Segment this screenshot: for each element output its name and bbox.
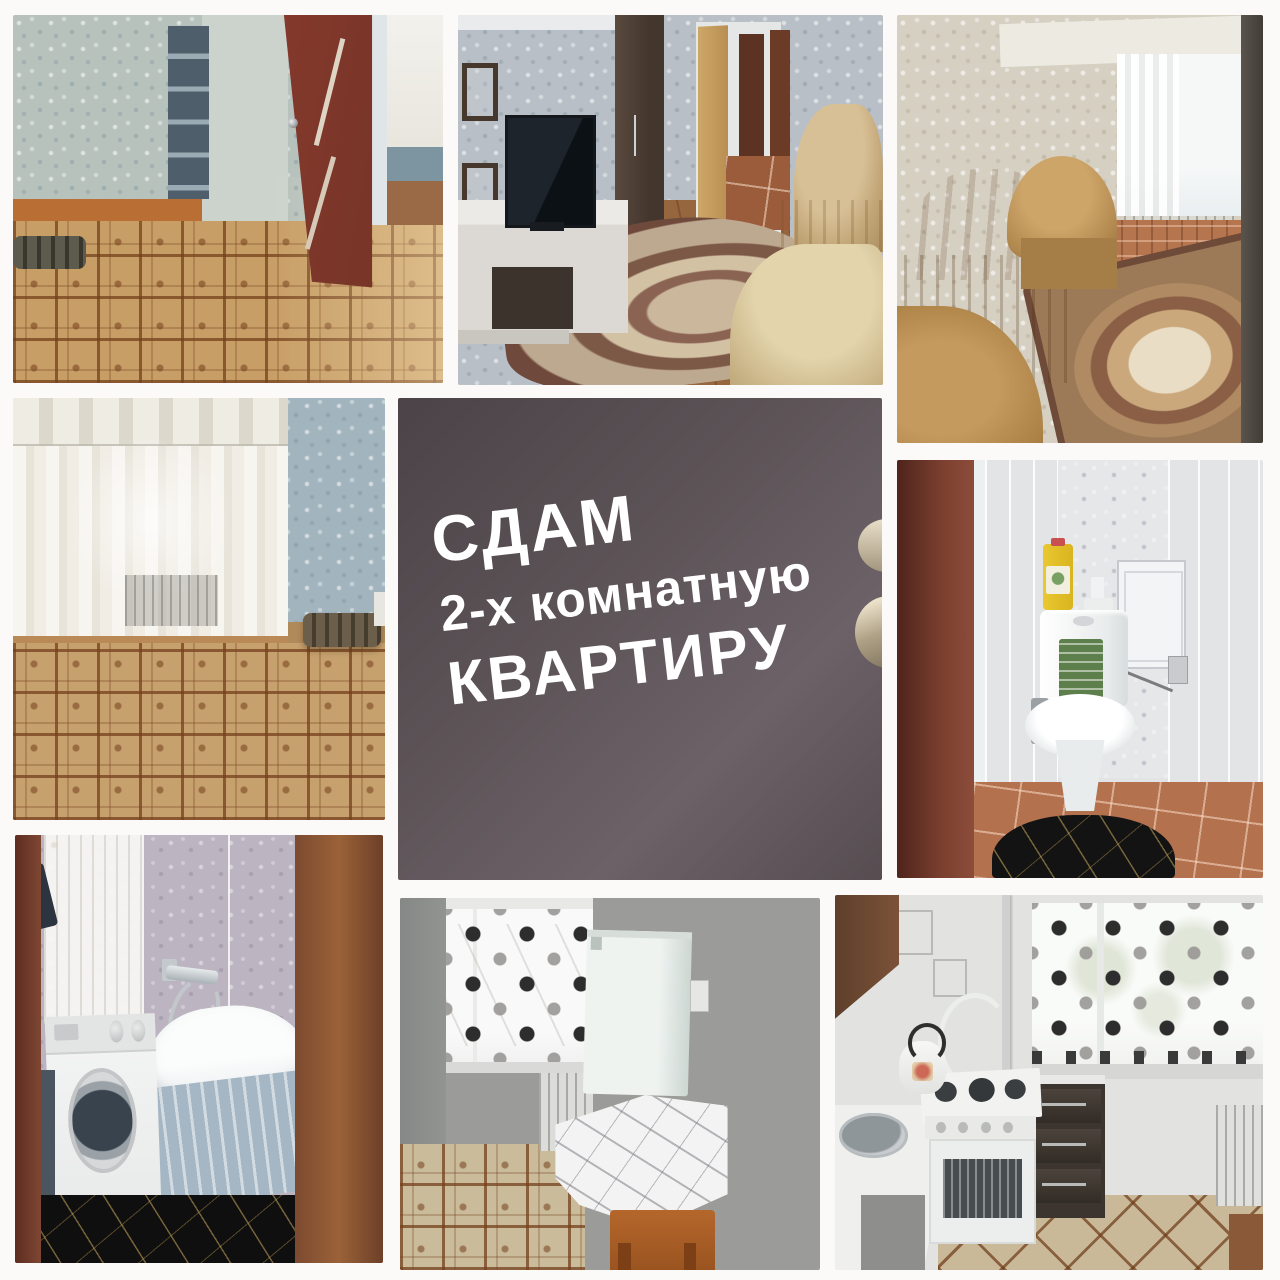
under-counter-shadow <box>861 1195 925 1270</box>
flush-button <box>1073 616 1094 626</box>
door-handle-upper <box>858 519 882 572</box>
tiled-floor <box>13 643 385 820</box>
tv <box>505 115 596 228</box>
stove-control-panel <box>925 1116 1036 1139</box>
wooden-stool <box>610 1210 715 1270</box>
drawer-handle <box>1042 1183 1087 1186</box>
photo-bathroom <box>15 835 383 1263</box>
curtain-wave-trim <box>1032 1051 1263 1064</box>
door-jamb-left <box>15 835 41 1263</box>
curtain-valance <box>13 398 288 446</box>
washer-display <box>54 1023 79 1041</box>
drawer-handle <box>1042 1143 1087 1146</box>
photo-toilet <box>897 460 1263 878</box>
radiator <box>1216 1105 1263 1206</box>
lace-curtain <box>44 835 143 1032</box>
burner <box>1004 1079 1027 1101</box>
fridge-top <box>587 930 692 939</box>
stove-knob <box>936 1122 946 1133</box>
chair-corner <box>1229 1214 1263 1270</box>
window <box>1032 903 1263 1064</box>
wall-shelf-box <box>462 63 498 121</box>
kettle-handle <box>908 1023 946 1063</box>
far-room-floor <box>387 181 443 225</box>
sink <box>839 1113 907 1158</box>
photo-title-card: СДАМ 2-х комнатную КВАРТИРУ <box>398 398 882 880</box>
stove-knob <box>981 1122 991 1133</box>
orange-floor-strip <box>13 199 202 221</box>
oven-window <box>943 1159 1021 1218</box>
access-panel-inner <box>1124 571 1183 663</box>
burner <box>968 1077 996 1103</box>
window-sill <box>446 1062 593 1073</box>
oven-door <box>929 1139 1036 1244</box>
stool-leg <box>684 1243 697 1270</box>
stove-knob <box>1003 1122 1013 1133</box>
wall-outlet <box>1168 656 1188 683</box>
hall-floor-tiles <box>726 156 790 230</box>
ceiling <box>458 15 628 30</box>
cabinet-drawer <box>492 267 573 330</box>
polka-dot-curtain <box>1032 903 1263 1064</box>
radiator-silhouette <box>125 575 218 626</box>
wall-panel-outline <box>895 910 933 955</box>
brown-door <box>897 460 974 878</box>
wardrobe-handle <box>634 115 636 156</box>
sheer-curtain <box>1117 54 1179 217</box>
armchair-seat <box>1021 238 1116 289</box>
polka-dot-curtain <box>446 909 593 1062</box>
kettle <box>899 1041 946 1094</box>
bathtub-panel <box>144 1070 316 1208</box>
wall-panel-outline <box>933 959 967 997</box>
photo-collage: СДАМ 2-х комнатную КВАРТИРУ <box>0 0 1280 1280</box>
photo-empty-room <box>13 398 385 820</box>
rolled-rug <box>13 236 86 269</box>
photo-hallway-open-door <box>13 15 443 383</box>
window <box>446 909 593 1062</box>
far-doorway-dark <box>739 34 765 156</box>
photo-kitchen <box>835 895 1263 1270</box>
tank-sticker <box>1059 639 1103 699</box>
washing-machine <box>45 1013 162 1205</box>
wood-door-right <box>295 835 383 1263</box>
wall-hatch <box>374 592 385 626</box>
bottle-cap <box>1051 538 1066 546</box>
shelf-unit <box>168 26 209 199</box>
wardrobe-edge <box>1241 15 1263 443</box>
photo-room-fridge <box>400 898 820 1270</box>
tv-stand <box>530 222 564 231</box>
drawer <box>1027 1169 1102 1203</box>
drawer-handle <box>1042 1103 1087 1106</box>
ceiling-strip <box>446 898 593 909</box>
door-handle-knob <box>855 596 882 668</box>
stool-leg <box>618 1243 631 1270</box>
title-card-text: СДАМ 2-х комнатную КВАРТИРУ <box>428 466 823 715</box>
toilet-tank <box>1040 610 1128 706</box>
stove-knob <box>958 1122 968 1133</box>
bottle-label <box>1046 566 1069 594</box>
far-door-dark <box>770 30 789 160</box>
wall-box <box>690 980 709 1012</box>
black-marble-floor <box>41 1195 299 1263</box>
fridge <box>583 930 692 1096</box>
washer-door <box>67 1066 139 1174</box>
photo-living-room-tv <box>458 15 883 385</box>
rug-medallion <box>1059 264 1263 443</box>
cleaner-bottle <box>1043 544 1072 611</box>
drawer <box>1027 1129 1102 1163</box>
rolled-rug <box>303 613 381 647</box>
cabinet-base <box>458 330 569 345</box>
kettle-label <box>912 1062 933 1081</box>
hall-door <box>698 25 728 223</box>
far-room-rug <box>387 147 443 180</box>
photo-living-room-sofas <box>897 15 1263 443</box>
wall-cabinet-corner <box>835 895 899 1019</box>
wall-seam <box>228 835 230 1023</box>
